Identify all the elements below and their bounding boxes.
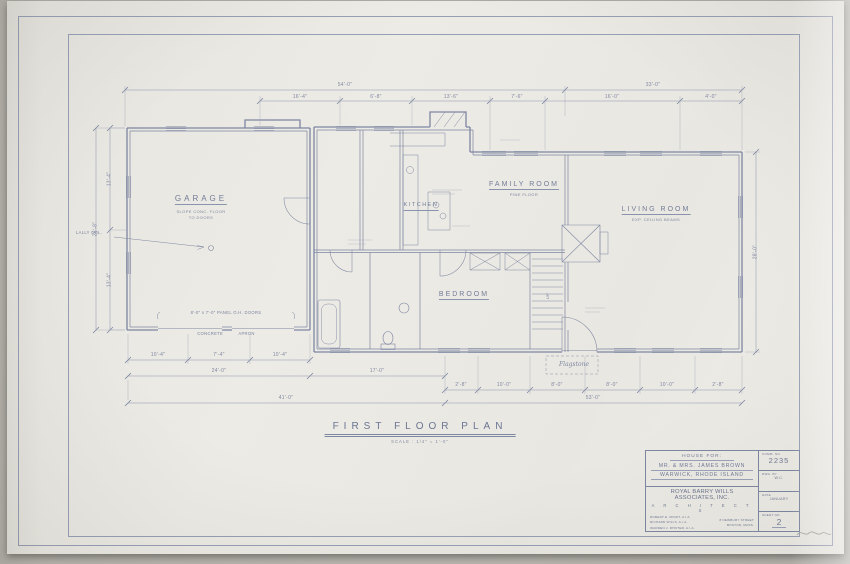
dim-right-total: 28'-0" [754,245,759,260]
sheet-number-cell: SHEET NO. 2 [759,512,799,531]
dim-bot-right-3: 8'-0" [551,383,562,388]
dim-top-seg-5: 16'-0" [605,95,620,100]
firm-subtitle: A R C H I T E C T S [650,503,754,513]
sheet-number-value: 2 [772,517,786,528]
dim-bot-garage-2: 7'-4" [213,353,224,358]
dim-top-seg-2: 6'-8" [370,95,381,100]
project-label: HOUSE FOR: [670,454,733,461]
garage-doors-note: 8'-0" x 7'-0" PANEL O.H. DOORS [191,311,262,315]
dim-top-seg-3: 13'-6" [444,95,459,100]
commission-number-cell: COMM. NO. 2235 [759,451,799,471]
fireplace [562,225,608,262]
dim-bot-right-1: 2'-8" [455,383,466,388]
drawing-scale: SCALE : 1/4" = 1'-0" [391,440,449,444]
dim-bot-garage-3: 10'-4" [273,353,288,358]
family-room-sub-note: PINE FLOOR [510,193,538,197]
dim-bot-right-2: 10'-0" [497,383,512,388]
room-label-family-room: FAMILY ROOM [489,181,559,190]
kitchen-fixtures [390,133,450,245]
living-room-sub-note: EXP. CEILING BEAMS [632,218,680,222]
dim-top-seg-4: 7'-6" [511,95,522,100]
garage-sub-note-1: SLOPE CONC. FLOOR [176,210,225,214]
drawing-title: FIRST FLOOR PLAN [325,422,516,437]
stair-up-label: UP [546,293,550,300]
firm-name: ROYAL BARRY WILLS ASSOCIATES, INC. [650,489,754,501]
dim-bot-garage-1: 10'-4" [151,353,166,358]
dim-bot-right-5: 10'-0" [660,383,675,388]
room-label-kitchen: KITCHEN [404,203,439,211]
dim-bot-total-left: 41'-0" [279,396,294,401]
dimension-lines [96,90,756,403]
title-block: HOUSE FOR: MR. & MRS. JAMES BROWN WARWIC… [645,450,800,532]
dim-bot-total-right: 53'-0" [586,396,601,401]
project-location: WARWICK, RHODE ISLAND [651,471,753,481]
dim-top-overall-right: 33'-0" [646,83,661,88]
lally-column-leader [114,237,214,251]
window-glyphs [127,127,743,353]
room-label-living-room: LIVING ROOM [622,206,691,215]
room-label-bedroom: BEDROOM [439,291,489,300]
closets [470,253,530,270]
firm-address: 8 NEWBURY STREET BOSTON, MASS. [719,518,754,531]
architect-cell: ROYAL BARRY WILLS ASSOCIATES, INC. A R C… [646,487,758,531]
flagstone-note: Flagstone [559,362,589,368]
exterior-walls [127,112,742,352]
photo-of-drawing: GARAGE SLOPE CONC. FLOOR TO DOORS KITCHE… [0,0,850,564]
project-info-cell: HOUSE FOR: MR. & MRS. JAMES BROWN WARWIC… [646,451,758,487]
commission-number-value: 2235 [762,456,796,465]
room-label-garage: GARAGE [175,195,227,205]
drawn-by-cell: DWG. BY W.C. [759,471,799,491]
dim-bot-garage-total: 24'-0" [212,369,227,374]
date-cell: DATE JANUARY [759,492,799,512]
dim-bot-right-6: 2'-8" [712,383,723,388]
pencil-mark [797,532,831,535]
bathroom-fixtures [318,300,409,350]
firm-principals: ROBERT E. MINOT, A.I.A. RICHARD WILLS, A… [650,515,695,531]
concrete-apron-note: CONCRETE APRON [197,332,255,336]
client-name: MR. & MRS. JAMES BROWN [651,461,753,471]
dim-bot-middle: 17'-0" [370,369,385,374]
dim-top-overall-left: 54'-0" [338,83,353,88]
drawn-by-value: W.C. [762,476,796,480]
dim-top-seg-6: 4'-0" [705,95,716,100]
dim-bot-right-4: 8'-0" [606,383,617,388]
date-value: JANUARY [762,497,796,501]
interior-partitions [314,130,568,352]
chimney-hatch [434,112,465,127]
dimension-ticks [93,87,759,406]
dim-left-seg-2: 13'-4" [108,273,113,288]
principal-3: WARREN J. RHOTER, A.I.A. [650,526,695,531]
exterior-walls-inner [130,130,739,349]
title-block-left: HOUSE FOR: MR. & MRS. JAMES BROWN WARWIC… [646,451,759,531]
dim-left-total: 26'-8" [94,222,99,237]
annotation-smudges [348,140,605,312]
dim-top-seg-1: 16'-4" [293,95,308,100]
garage-sub-note-2: TO DOORS [189,216,213,220]
dim-left-seg-1: 13'-4" [108,172,113,187]
title-block-right: COMM. NO. 2235 DWG. BY W.C. DATE JANUARY… [759,451,799,531]
door-swings [158,198,597,352]
firm-address-city: BOSTON, MASS. [719,523,754,528]
